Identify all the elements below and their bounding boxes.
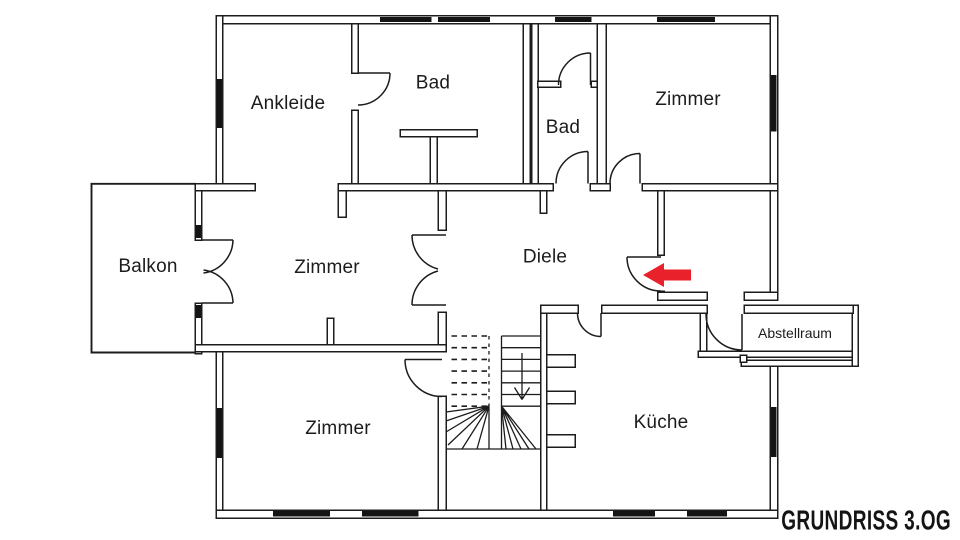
room-label-zimmer-middle: Zimmer xyxy=(294,257,360,278)
window-icon xyxy=(380,17,432,22)
door-diele-zimmer xyxy=(610,154,640,184)
window-icon xyxy=(657,17,715,22)
window-icon xyxy=(555,17,592,22)
entrance-arrow-icon xyxy=(643,263,691,287)
door-kueche xyxy=(578,313,602,337)
room-label-abstellraum: Abstellraum xyxy=(758,325,832,341)
room-label-balkon: Balkon xyxy=(118,256,177,277)
room-labels: Ankleide Bad Bad Zimmer Balkon Zimmer Di… xyxy=(118,73,832,440)
floorplan-canvas: Ankleide Bad Bad Zimmer Balkon Zimmer Di… xyxy=(0,0,960,540)
window-icon xyxy=(196,305,201,318)
floorplan-drawing: Ankleide Bad Bad Zimmer Balkon Zimmer Di… xyxy=(0,0,960,540)
window-icon xyxy=(217,408,222,458)
window-icon xyxy=(273,511,330,516)
door-bad-internal xyxy=(559,53,591,85)
window-icon xyxy=(196,225,201,238)
double-door-balkon xyxy=(202,240,234,303)
room-label-zimmer-bottom: Zimmer xyxy=(305,418,371,439)
bath-partition xyxy=(400,130,477,137)
window-icon xyxy=(771,407,777,457)
room-label-bad-small: Bad xyxy=(546,117,580,138)
double-door-zimmer-middle xyxy=(412,235,446,305)
window-icon xyxy=(362,511,419,516)
door-diele-bad xyxy=(556,152,588,184)
door-zimmer-bottom xyxy=(405,360,442,397)
window-icon xyxy=(771,75,777,132)
door-abstellraum xyxy=(706,314,742,350)
window-icon xyxy=(613,511,655,516)
room-label-zimmer-top-right: Zimmer xyxy=(655,89,721,110)
interior-walls xyxy=(327,24,858,511)
room-label-ankleide: Ankleide xyxy=(251,93,325,114)
door-ankleide-bad xyxy=(358,73,390,105)
floorplan-title: GRUNDRISS 3.OG xyxy=(781,505,951,537)
staircase xyxy=(446,336,541,449)
room-label-diele: Diele xyxy=(523,247,567,268)
window-icon xyxy=(438,17,490,22)
window-icon xyxy=(687,511,727,516)
room-label-bad-top: Bad xyxy=(416,73,450,94)
window-icon xyxy=(217,79,222,128)
room-label-kueche: Küche xyxy=(634,412,689,433)
